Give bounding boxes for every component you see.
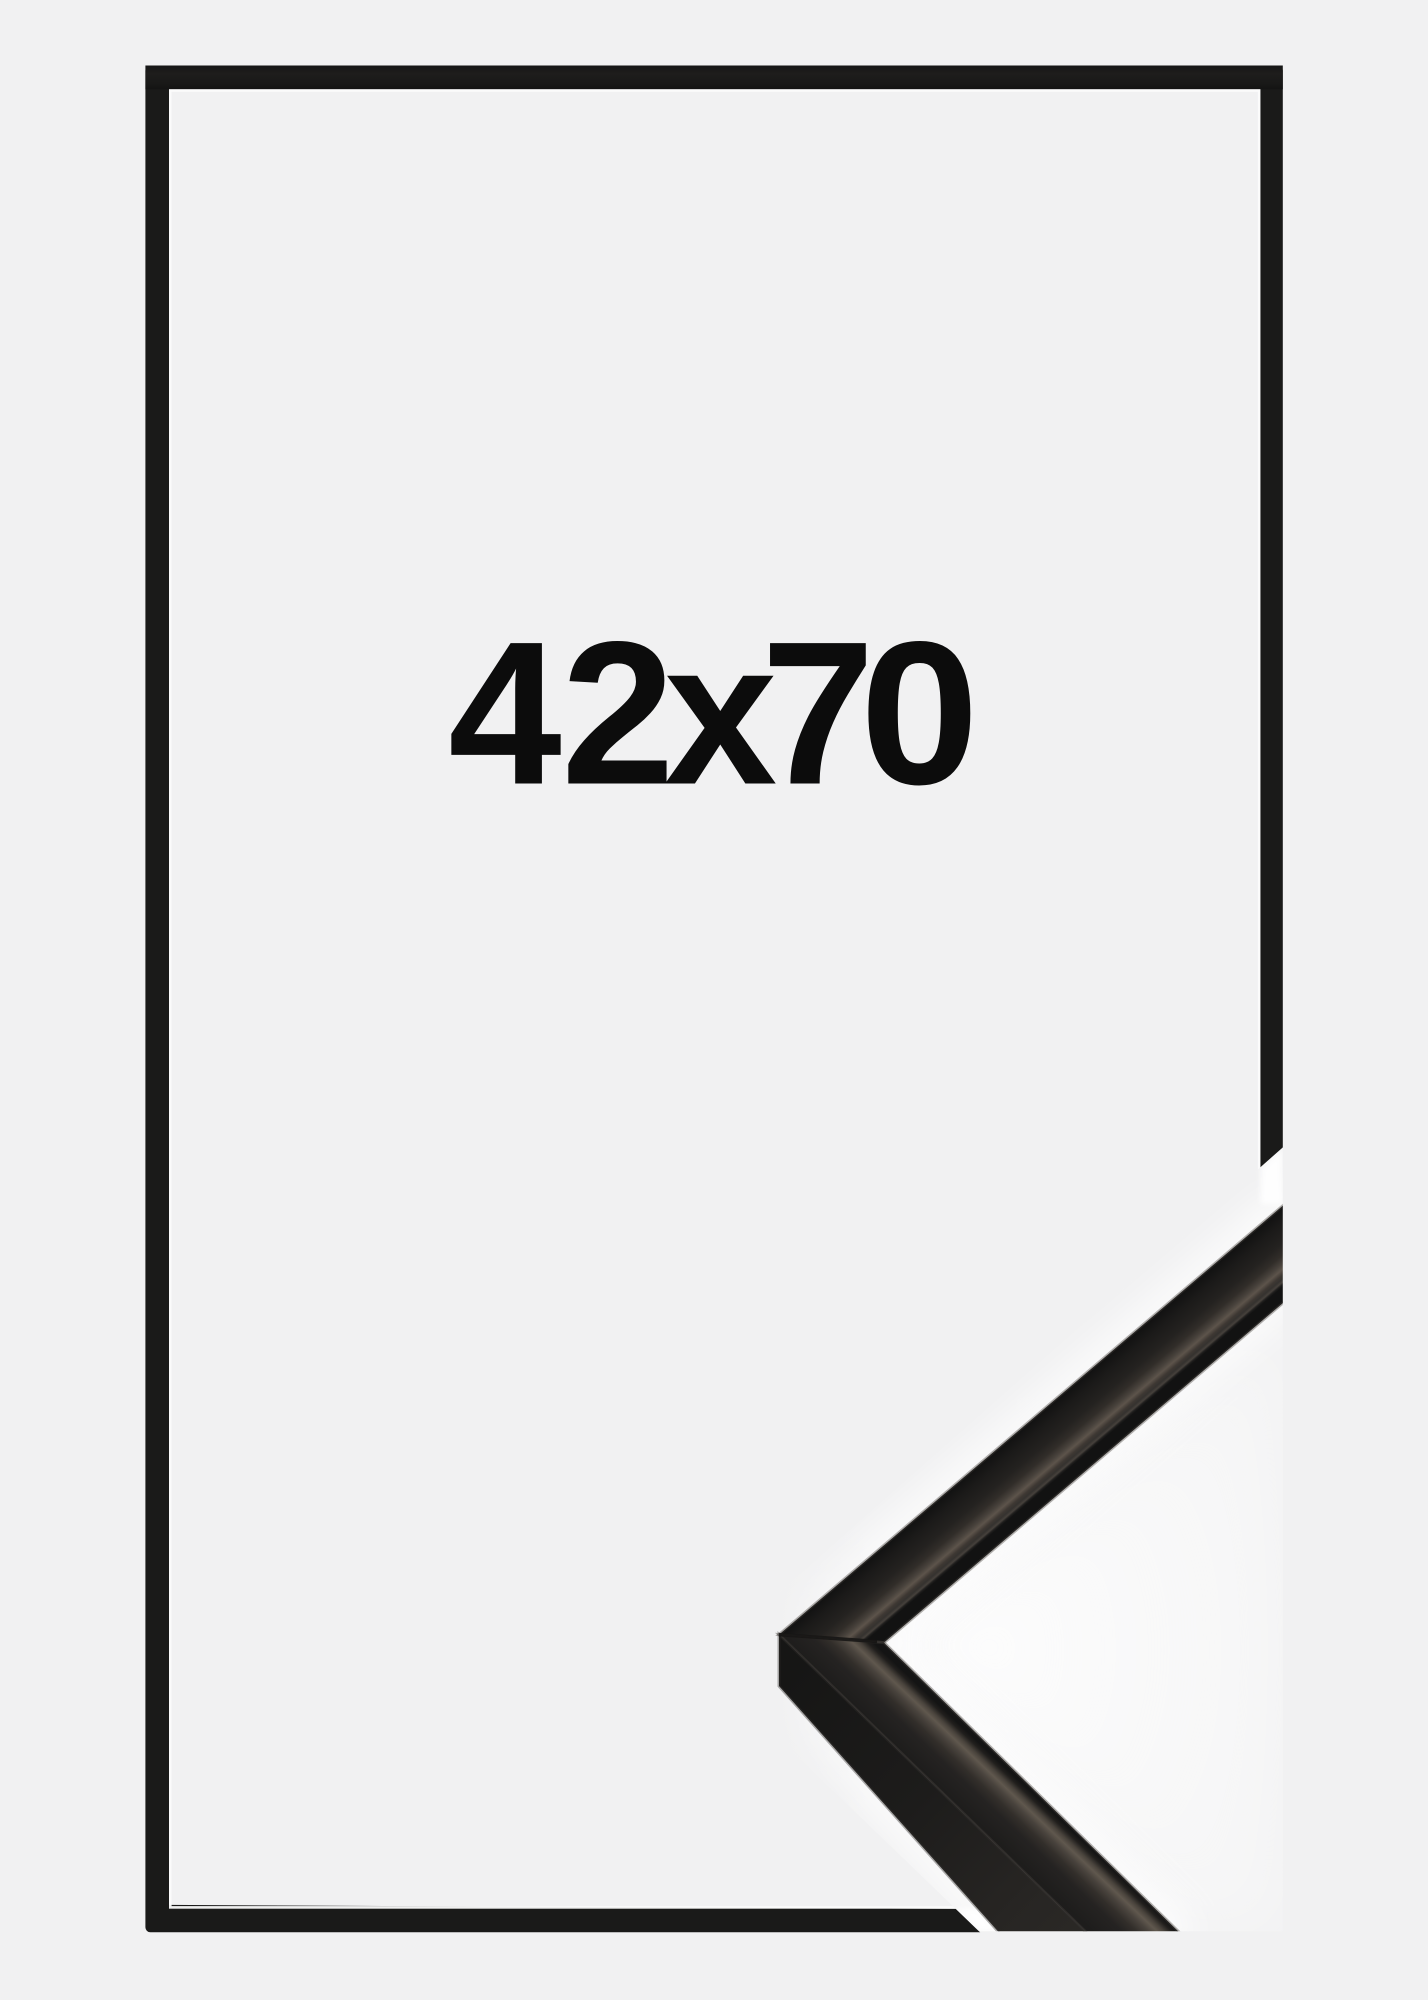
svg-text:x: x <box>664 600 777 828</box>
svg-text:4: 4 <box>448 600 561 828</box>
svg-text:7: 7 <box>761 600 874 828</box>
svg-text:2: 2 <box>561 600 674 828</box>
svg-text:0: 0 <box>860 600 979 827</box>
